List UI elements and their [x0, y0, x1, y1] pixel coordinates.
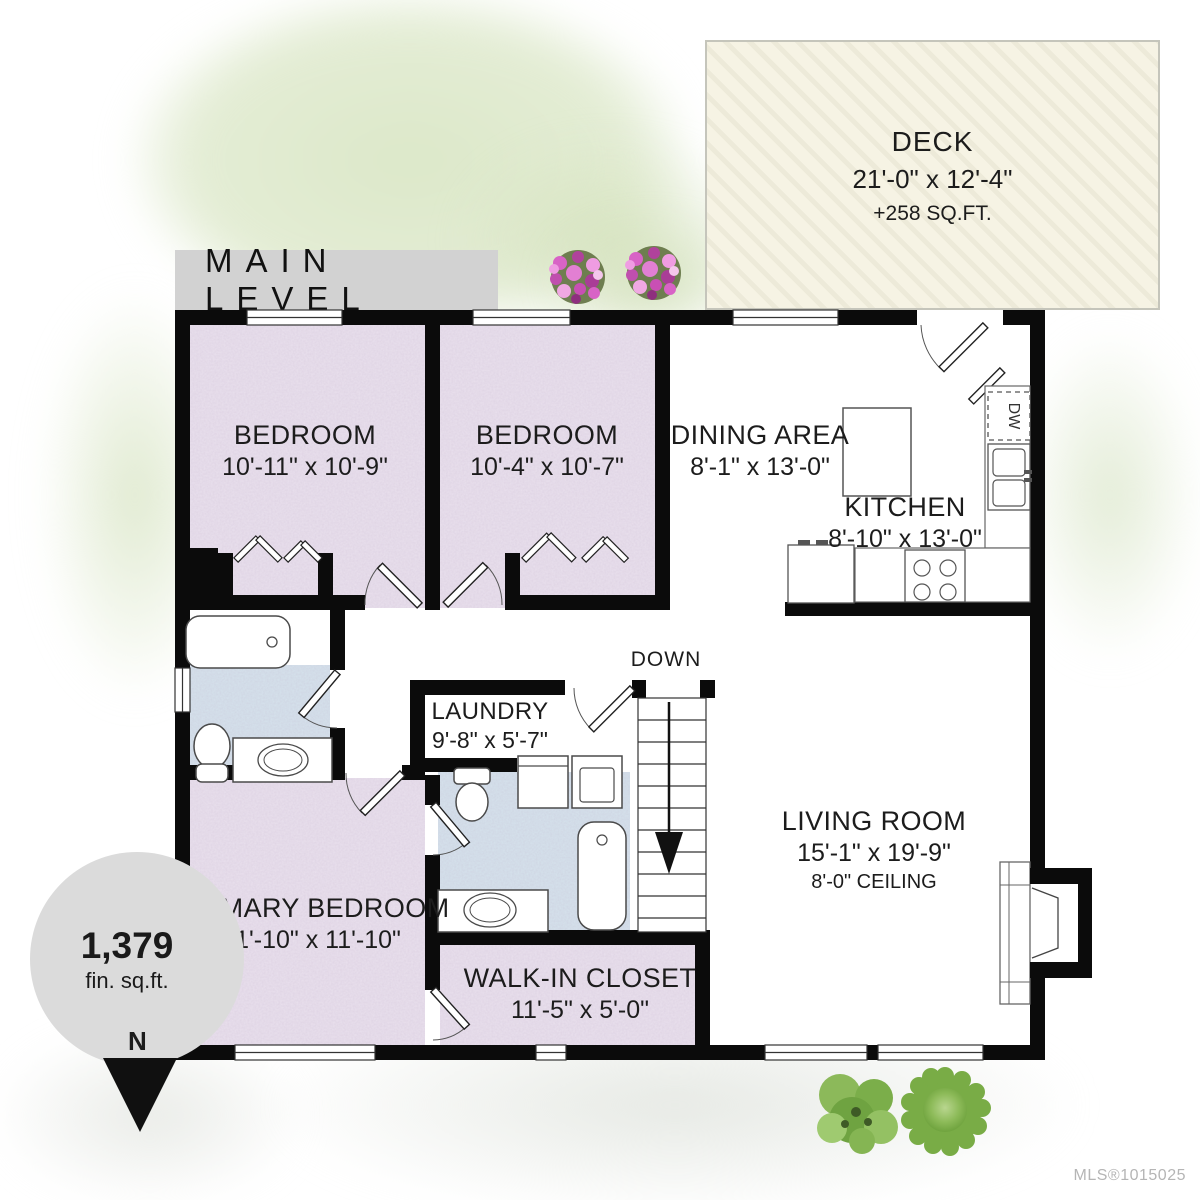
floor-plan-page: DECK 21'-0" x 12'-4" +258 SQ.FT. MAIN LE… [0, 0, 1200, 1200]
room-name: BEDROOM [222, 420, 388, 451]
room-dims: 9'-8" x 5'-7" [431, 727, 548, 754]
room-name: LIVING ROOM [782, 806, 966, 837]
stairs-down-label: DOWN [631, 648, 702, 672]
kitchen-island [843, 408, 911, 496]
flower-bush-icon [625, 246, 681, 300]
dining-label: DINING AREA 8'-1" x 13'-0" [671, 420, 849, 482]
room-dims: 10'-4" x 10'-7" [470, 453, 624, 482]
room-dims: 8'-1" x 13'-0" [671, 453, 849, 482]
room-dims: 15'-1" x 19'-9" [782, 839, 966, 868]
walkin-closet-label: WALK-IN CLOSET 11'-5" x 5'-0" [464, 963, 697, 1025]
bedroom2-label: BEDROOM 10'-4" x 10'-7" [470, 420, 624, 482]
kitchen-label: KITCHEN 8'-10" x 13'-0" [828, 492, 982, 554]
mls-credit: MLS®1015025 [1074, 1167, 1186, 1185]
toilet-fixture [194, 724, 230, 782]
compass-north-label: N [128, 1026, 147, 1057]
room-dims: 11'-5" x 5'-0" [464, 996, 697, 1025]
room-name: WALK-IN CLOSET [464, 963, 697, 994]
room-name: BEDROOM [470, 420, 624, 451]
laundry-label: LAUNDRY 9'-8" x 5'-7" [431, 698, 548, 754]
finished-sqft-unit: fin. sq.ft. [85, 968, 168, 994]
kitchen-sink-fixture [988, 444, 1032, 510]
staircase [638, 698, 706, 932]
ceiling-height: 8'-0" CEILING [782, 871, 966, 894]
stove-fixture [905, 550, 965, 602]
flower-bush-icon [549, 250, 605, 304]
ensuite-vanity-sink-fixture [438, 890, 548, 932]
tree-icon [817, 1074, 898, 1154]
room-name: DINING AREA [671, 420, 849, 451]
dishwasher-label: DW [1005, 403, 1022, 431]
finished-sqft-value: 1,379 [81, 925, 174, 967]
room-dims: 10'-11" x 10'-9" [222, 453, 388, 482]
bathtub-fixture [186, 616, 290, 668]
room-name: LAUNDRY [431, 698, 548, 726]
room-name: KITCHEN [828, 492, 982, 523]
dishwasher-fixture: DW [988, 392, 1030, 440]
north-arrow-icon [103, 1058, 177, 1132]
living-room-label: LIVING ROOM 15'-1" x 19'-9" 8'-0" CEILIN… [782, 806, 966, 894]
shower-tub-fixture [578, 822, 626, 930]
bedroom1-label: BEDROOM 10'-11" x 10'-9" [222, 420, 388, 482]
room-dims: 8'-10" x 13'-0" [828, 525, 982, 554]
fireplace-fixture [1000, 862, 1092, 1004]
vanity-sink-fixture [233, 738, 332, 782]
tree-icon [901, 1067, 991, 1156]
ensuite-toilet-fixture [454, 768, 490, 821]
